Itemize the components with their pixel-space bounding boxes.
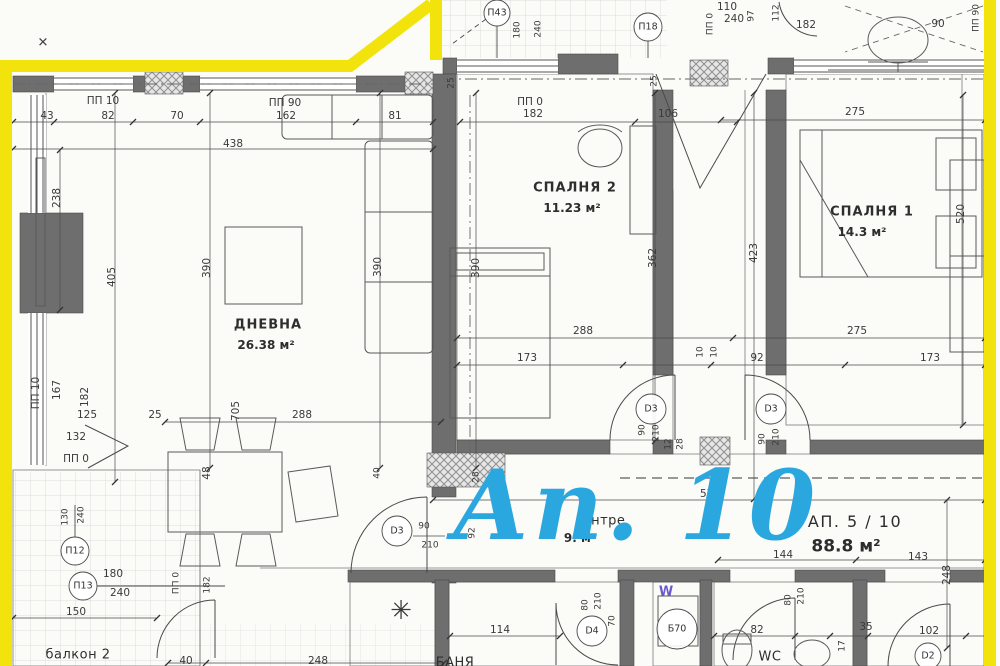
dim-173: 173 (517, 353, 537, 364)
dim-520: 520 (956, 204, 967, 224)
dim-182: 182 (80, 387, 91, 407)
dim-28: 28 (677, 438, 686, 449)
dim-132: 132 (66, 432, 86, 443)
dim-423: 423 (749, 243, 760, 263)
dim-82: 82 (101, 111, 114, 122)
dim-240: 240 (110, 588, 130, 599)
dim-82: 82 (750, 625, 763, 636)
room-label-bedroom2: СПАЛНЯ 2 (533, 182, 617, 195)
dim-pp90: ПП 90 (973, 4, 982, 32)
dim-210: 210 (421, 542, 438, 551)
dim-288: 288 (292, 410, 312, 421)
dim-248: 248 (942, 565, 953, 585)
dim-275: 275 (847, 326, 867, 337)
dim-180: 180 (103, 569, 123, 580)
dim-90: 90 (759, 433, 768, 444)
dim-pp10: ПП 10 (31, 377, 42, 410)
dim-110: 110 (717, 2, 737, 13)
dim-173: 173 (920, 353, 940, 364)
dim-210: 210 (773, 428, 782, 445)
dim-248: 248 (308, 656, 328, 666)
window-mark-p13: П13 (73, 581, 92, 591)
dim-pp0: ПП 0 (63, 454, 89, 465)
room-area-bedroom2: 11.23 м² (543, 202, 600, 214)
dim-180: 180 (514, 21, 523, 38)
dim-90: 90 (639, 424, 648, 435)
dim-705: 705 (231, 401, 242, 421)
dim-390: 390 (202, 258, 213, 278)
dim-112: 112 (773, 4, 782, 21)
dim-167: 167 (52, 380, 63, 400)
dim-35: 35 (859, 622, 872, 633)
dim-80: 80 (785, 594, 794, 605)
door-mark-d3: D3 (390, 526, 403, 536)
x-mark-icon: ✕ (38, 37, 49, 50)
dim-390: 390 (471, 258, 482, 278)
apartment-area: 88.8 м² (811, 539, 880, 556)
dim-pp10: ПП 10 (87, 96, 120, 107)
apartment-watermark: Ап. 10 (452, 458, 818, 554)
dim-90: 90 (931, 19, 944, 30)
dim-48: 48 (202, 466, 213, 479)
dim-10: 10 (697, 346, 706, 357)
dim-12: 12 (665, 438, 674, 449)
dim-182: 182 (796, 20, 816, 31)
ac-unit-icon: ✳ (390, 598, 412, 624)
dim-70: 70 (609, 615, 618, 626)
dim-240: 240 (535, 20, 544, 37)
dim-238: 238 (52, 188, 63, 208)
dim-25: 25 (148, 410, 161, 421)
dim-17: 17 (839, 640, 848, 651)
dim-90: 90 (418, 523, 429, 532)
boiler-mark-b70: Б70 (668, 624, 687, 634)
dim-25: 25 (651, 75, 660, 86)
dim-182: 182 (523, 109, 543, 120)
dim-210: 210 (798, 587, 807, 604)
dim-150: 150 (66, 607, 86, 618)
door-mark-d2: D2 (921, 651, 934, 661)
door-mark-d3: D3 (644, 404, 657, 414)
dim-210: 210 (653, 424, 662, 441)
dim-40: 40 (179, 656, 192, 666)
dim-362: 362 (648, 248, 659, 268)
window-mark-p43: П43 (487, 8, 506, 18)
room-label-living: ДНЕВНА (234, 319, 302, 332)
dim-40: 40 (374, 467, 383, 478)
dim-438: 438 (223, 139, 243, 150)
window-mark-p18: П18 (638, 22, 657, 32)
dim-275: 275 (845, 107, 865, 118)
door-mark-d4: D4 (585, 626, 598, 636)
dim-143: 143 (908, 552, 928, 563)
dim-405: 405 (107, 267, 118, 287)
dim-92: 92 (750, 353, 763, 364)
room-area-bedroom1: 14.3 м² (838, 226, 887, 238)
dim-106: 106 (658, 109, 678, 120)
dim-162: 162 (276, 111, 296, 122)
floorplan-page: П43 180 240 П18 110 240 ПП 0 97 112 182 … (0, 0, 1000, 666)
room-label-bath: БАНЯ (436, 657, 475, 666)
door-mark-d3: D3 (764, 404, 777, 414)
dim-240: 240 (78, 506, 87, 523)
room-label-bedroom1: СПАЛНЯ 1 (830, 206, 914, 219)
dim-240: 240 (724, 14, 744, 25)
dim-390: 390 (373, 257, 384, 277)
dim-70: 70 (170, 111, 183, 122)
dim-pp0: ПП 0 (173, 572, 182, 594)
dim-pp90: ПП 90 (269, 98, 302, 109)
washer-mark: W (659, 586, 673, 599)
room-area-living: 26.38 м² (237, 339, 294, 351)
window-mark-p12: П12 (65, 546, 84, 556)
dim-80: 80 (582, 599, 591, 610)
dim-288: 288 (573, 326, 593, 337)
room-label-wc: WC (759, 651, 782, 664)
dim-10: 10 (711, 346, 720, 357)
dim-125: 125 (77, 410, 97, 421)
dim-114: 114 (490, 625, 510, 636)
dim-43: 43 (40, 111, 53, 122)
dim-130: 130 (62, 508, 71, 525)
room-label-balcony2: балкон 2 (45, 649, 110, 662)
apartment-label: АП. 5 / 10 (808, 514, 902, 530)
dim-102: 102 (919, 626, 939, 637)
dim-pp0: ПП 0 (707, 13, 716, 35)
dim-25: 25 (448, 77, 457, 88)
dim-81: 81 (388, 111, 401, 122)
dim-182: 182 (204, 576, 213, 593)
dim-pp0: ПП 0 (517, 97, 543, 108)
dim-97: 97 (748, 10, 757, 21)
dim-210: 210 (595, 592, 604, 609)
